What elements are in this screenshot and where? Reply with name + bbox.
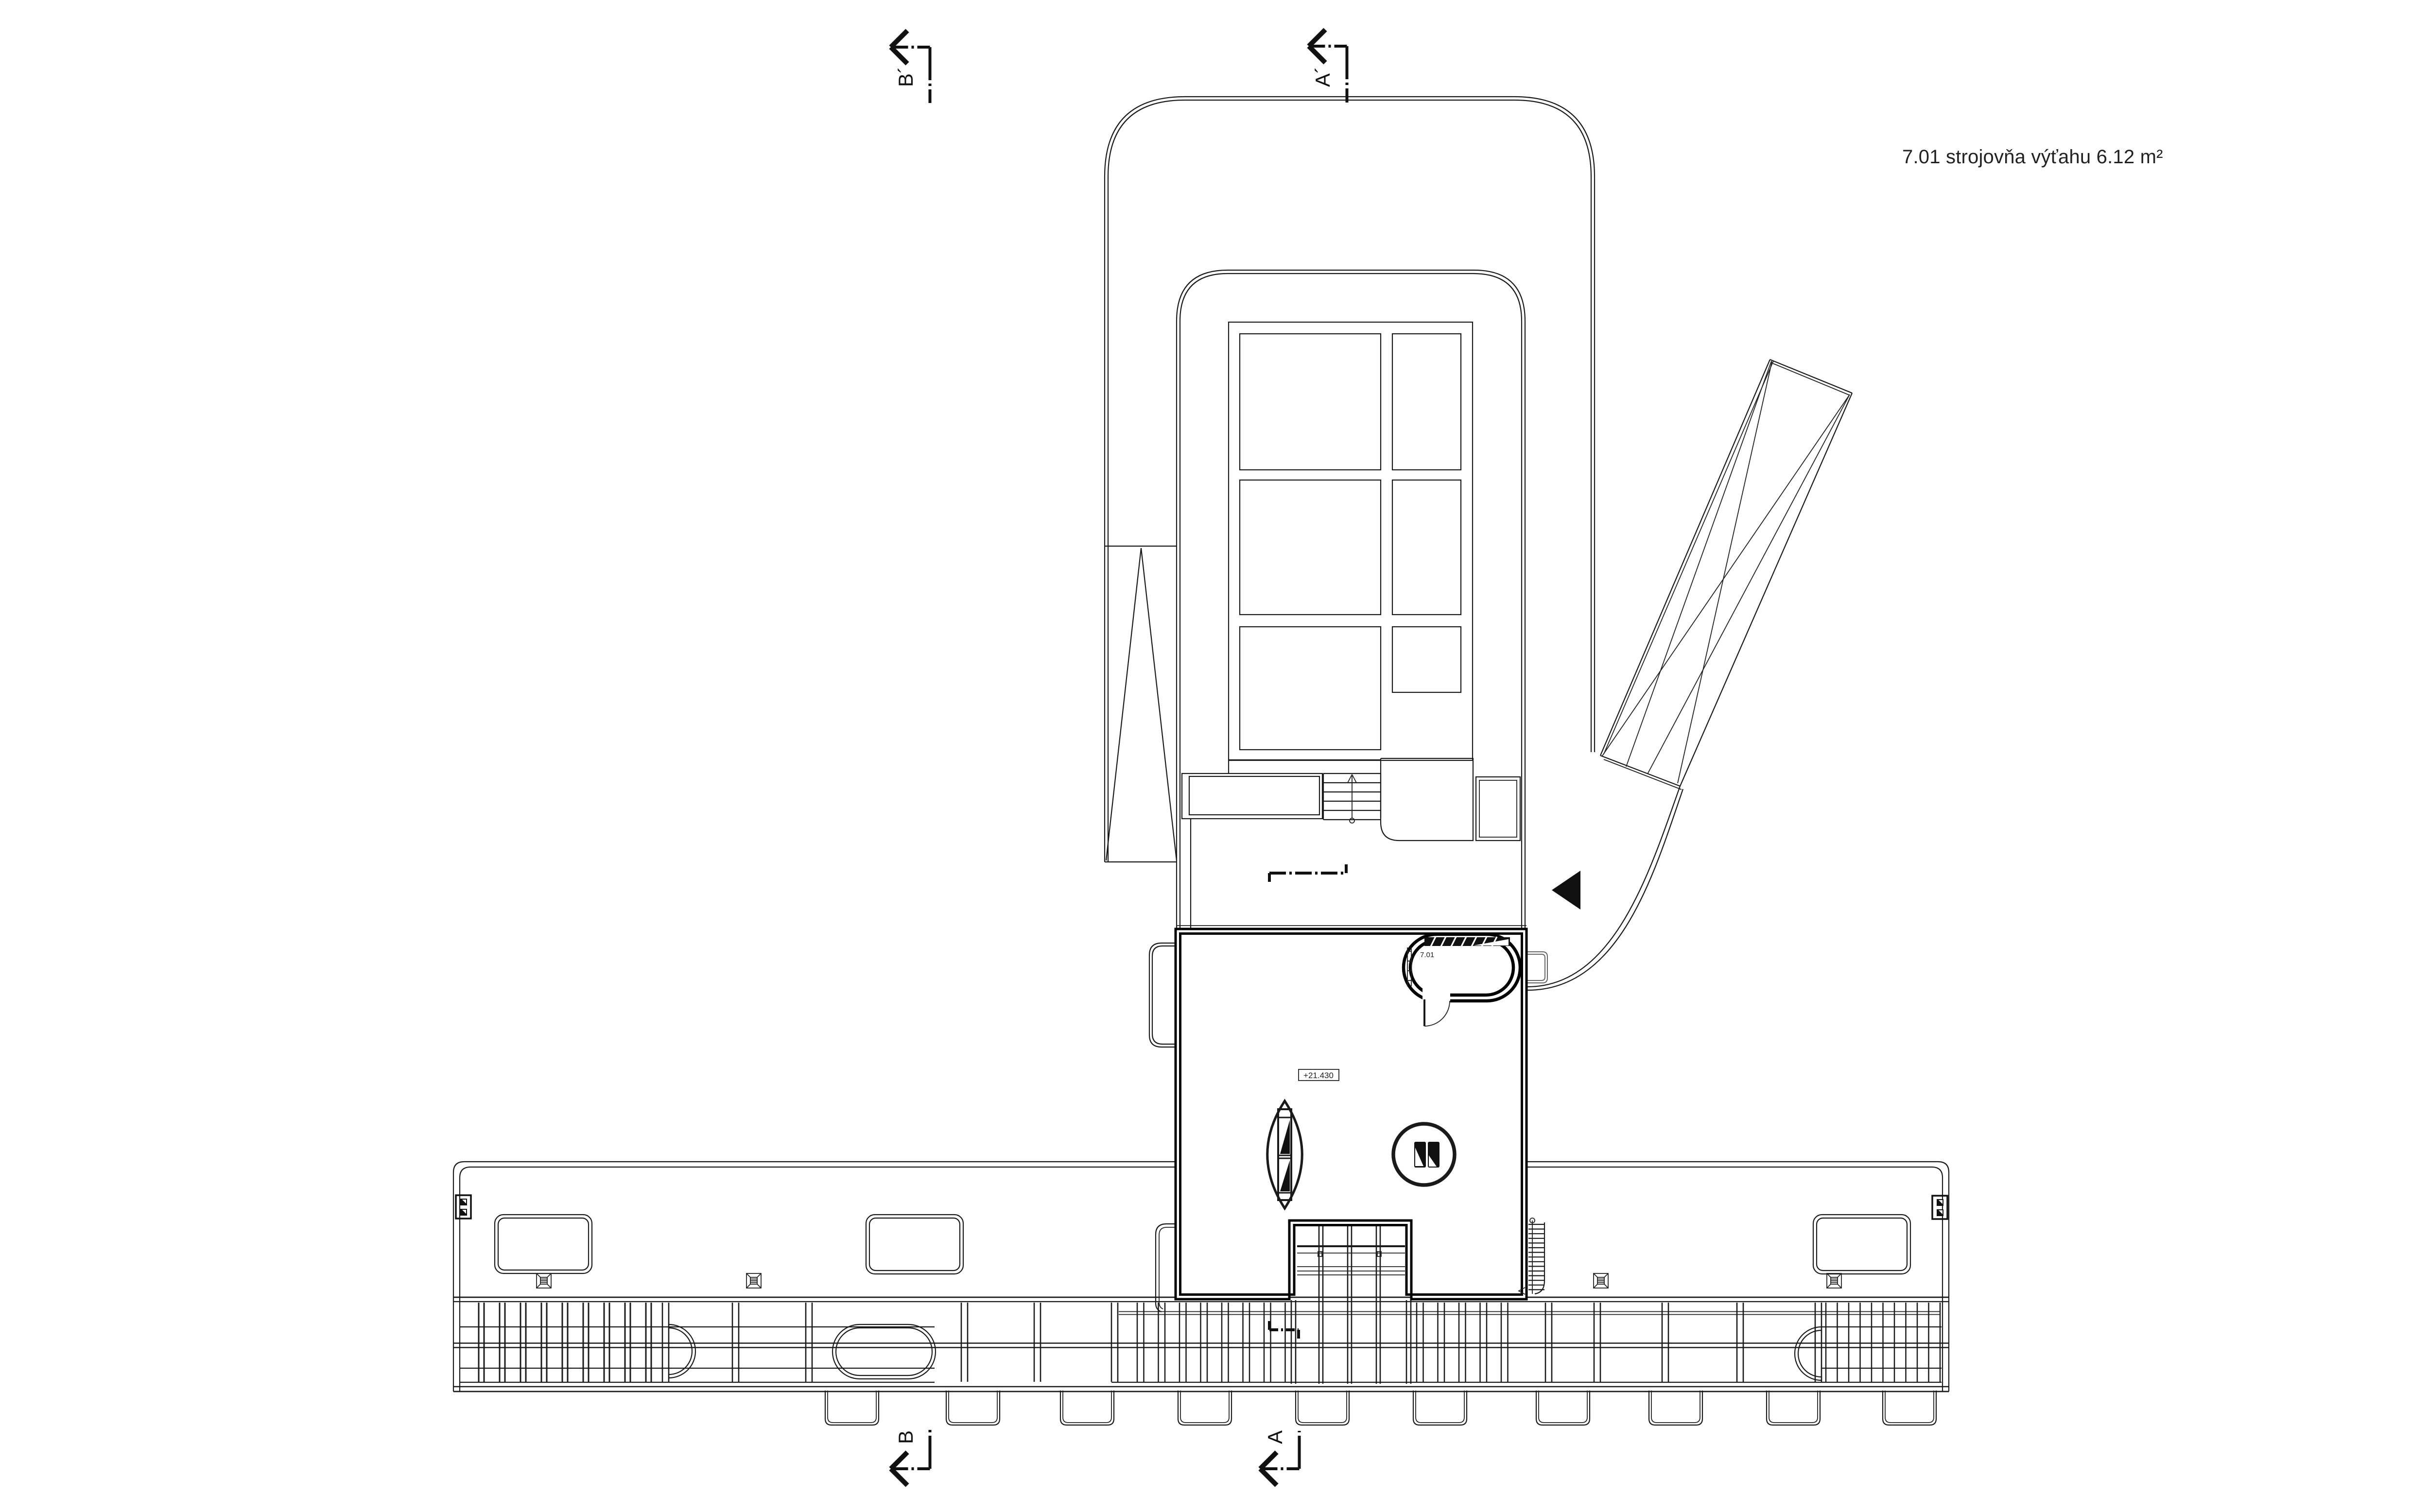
svg-text:+21.430: +21.430 xyxy=(1303,1071,1334,1080)
svg-text:B´: B´ xyxy=(894,67,917,87)
svg-text:7.01 strojovňa výťahu 6.12 m²: 7.01 strojovňa výťahu 6.12 m² xyxy=(1902,146,2163,168)
svg-text:A: A xyxy=(1264,1430,1286,1444)
svg-text:A´: A´ xyxy=(1311,67,1334,87)
svg-text:7.01: 7.01 xyxy=(1420,951,1434,959)
svg-text:B: B xyxy=(894,1430,917,1444)
